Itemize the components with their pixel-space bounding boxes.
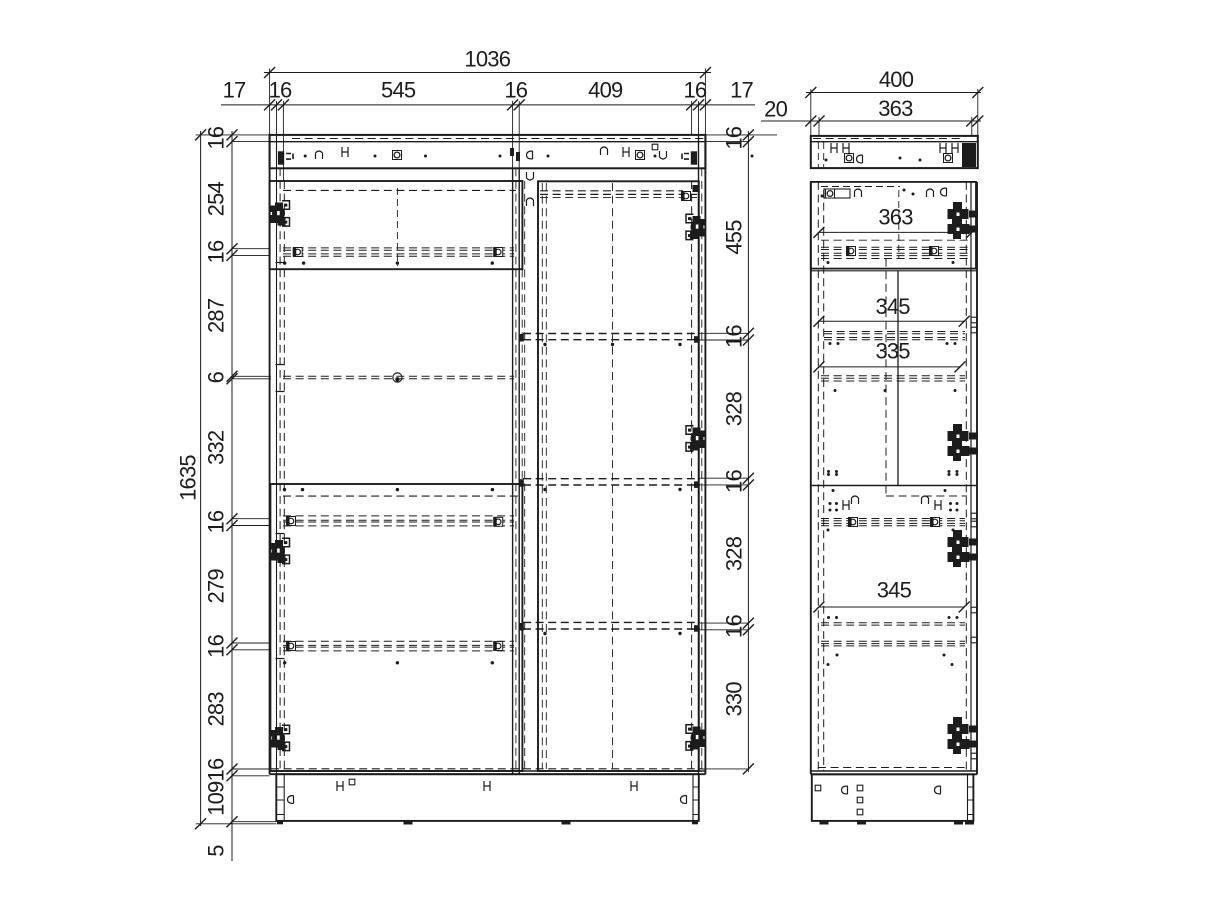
svg-text:1036: 1036 [464, 46, 510, 71]
svg-text:16: 16 [204, 510, 229, 533]
svg-text:345: 345 [877, 577, 912, 602]
svg-text:16: 16 [269, 78, 292, 103]
svg-text:17: 17 [730, 78, 753, 103]
svg-text:287: 287 [204, 298, 229, 333]
svg-text:16: 16 [683, 78, 706, 103]
svg-text:16: 16 [204, 758, 229, 781]
svg-text:409: 409 [588, 77, 623, 102]
svg-text:16: 16 [722, 615, 747, 638]
svg-text:363: 363 [878, 205, 913, 230]
svg-text:16: 16 [504, 78, 527, 103]
svg-text:332: 332 [204, 430, 229, 465]
svg-text:6: 6 [204, 371, 229, 383]
svg-text:16: 16 [722, 126, 747, 149]
svg-text:16: 16 [204, 126, 229, 149]
svg-text:279: 279 [204, 569, 229, 604]
svg-text:17: 17 [223, 78, 246, 103]
svg-text:20: 20 [764, 97, 787, 122]
svg-text:400: 400 [879, 67, 914, 92]
svg-text:1635: 1635 [176, 455, 201, 501]
svg-text:545: 545 [381, 77, 416, 102]
svg-text:16: 16 [204, 240, 229, 263]
svg-text:254: 254 [204, 181, 229, 216]
svg-text:283: 283 [204, 692, 229, 727]
svg-text:335: 335 [875, 338, 910, 363]
svg-text:16: 16 [722, 470, 747, 493]
svg-text:16: 16 [722, 325, 747, 348]
svg-text:345: 345 [875, 294, 910, 319]
svg-text:330: 330 [722, 682, 747, 717]
svg-text:109: 109 [204, 781, 229, 816]
svg-text:328: 328 [722, 391, 747, 426]
svg-text:5: 5 [204, 845, 229, 857]
svg-text:363: 363 [878, 96, 913, 121]
svg-text:455: 455 [722, 220, 747, 255]
svg-text:16: 16 [204, 634, 229, 657]
svg-text:328: 328 [722, 536, 747, 571]
